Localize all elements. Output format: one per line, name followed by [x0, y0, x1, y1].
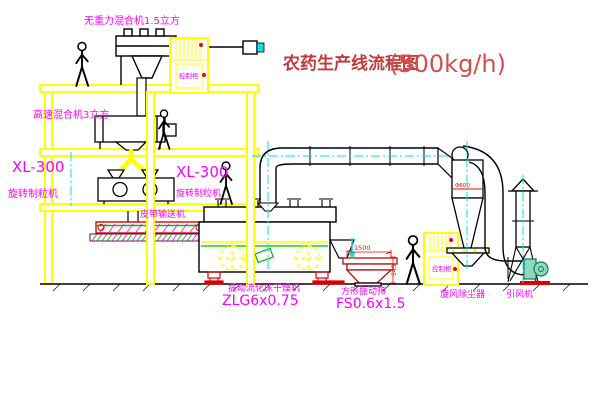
control-cabinet-2: 控制柜 [424, 233, 458, 285]
label-granulator-mid-name: 旋转制粒机 [176, 187, 221, 199]
worker-figure [407, 236, 420, 284]
label-cyclone: 旋风除尘器 [440, 288, 485, 300]
dim-sieve-length: 1500 [354, 244, 371, 252]
fan-base [520, 281, 550, 285]
dim-sieve-height: 545 [391, 264, 398, 276]
cabinet2-label: 控制柜 [432, 264, 452, 273]
label-dryer-model: ZLG6x0.75 [222, 293, 299, 309]
control-cabinet-1: 控制柜 [170, 38, 208, 93]
drawing-root: 控制柜 [0, 0, 600, 403]
indicator-light [453, 267, 457, 271]
coupling-cyan [257, 43, 264, 52]
label-sieve-model: FS0.6x1.5 [336, 296, 406, 312]
indicator-light [202, 73, 206, 77]
cabinet1-label: 控制柜 [179, 71, 199, 80]
cyclone [447, 147, 489, 266]
indicator-light [449, 238, 453, 242]
granulator [98, 170, 174, 204]
spring-feet [205, 272, 344, 284]
building-column [247, 92, 254, 284]
building-column [147, 92, 154, 284]
label-granulator-mid-model: XL-300 [176, 163, 228, 181]
cad-flow-diagram: 控制柜 [0, 0, 600, 403]
granulator-discharge-pipe [128, 211, 138, 222]
title-block: 农药生产线流程图 (500kg/h) [282, 50, 506, 78]
fluid-bed-dryer [199, 199, 354, 284]
dim-cyclone-diameter: Φ600 [455, 183, 470, 189]
indicator-light [199, 43, 203, 47]
label-high-speed-mixer: 高速混合机3立方 [33, 108, 109, 121]
worker-figure [76, 43, 88, 86]
label-gravity-mixer: 无重力混合机1.5立方 [84, 14, 180, 27]
label-fan: 引风机 [506, 288, 533, 300]
square-sieve [343, 258, 397, 286]
label-granulator-left-name: 旋转制粒机 [8, 187, 58, 200]
label-granulator-left-model: XL-300 [12, 158, 64, 176]
diagram-capacity: (500kg/h) [389, 50, 506, 78]
induced-draft-fan [520, 259, 550, 285]
label-belt-conveyor: 皮带输送机 [140, 208, 185, 220]
